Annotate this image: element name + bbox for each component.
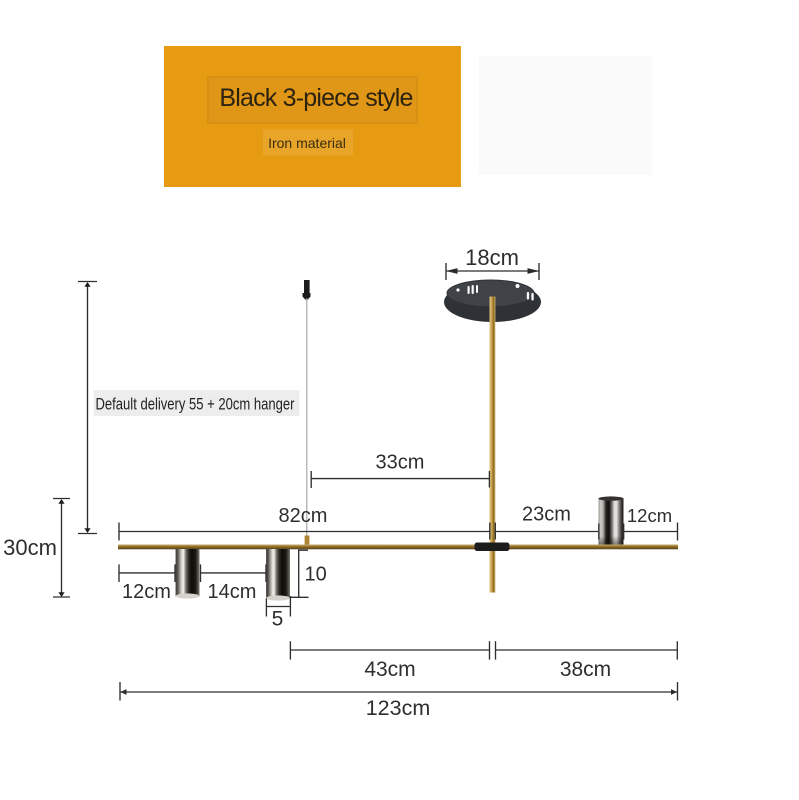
svg-text:Black 3-piece style: Black 3-piece style — [219, 84, 412, 112]
svg-text:33cm: 33cm — [376, 452, 425, 474]
svg-text:123cm: 123cm — [366, 696, 431, 720]
svg-text:Iron material: Iron material — [268, 135, 346, 151]
svg-text:10: 10 — [305, 564, 327, 586]
svg-text:14cm: 14cm — [208, 581, 257, 603]
svg-text:43cm: 43cm — [364, 658, 415, 681]
svg-text:18cm: 18cm — [465, 245, 519, 270]
svg-text:30cm: 30cm — [3, 535, 57, 560]
svg-text:5: 5 — [272, 608, 284, 631]
svg-text:Default delivery 55 + 20cm han: Default delivery 55 + 20cm hanger — [96, 396, 295, 414]
svg-text:12cm: 12cm — [627, 505, 672, 526]
svg-text:82cm: 82cm — [279, 505, 328, 527]
svg-text:38cm: 38cm — [560, 658, 611, 681]
svg-text:12cm: 12cm — [122, 581, 171, 603]
svg-text:23cm: 23cm — [522, 504, 571, 526]
